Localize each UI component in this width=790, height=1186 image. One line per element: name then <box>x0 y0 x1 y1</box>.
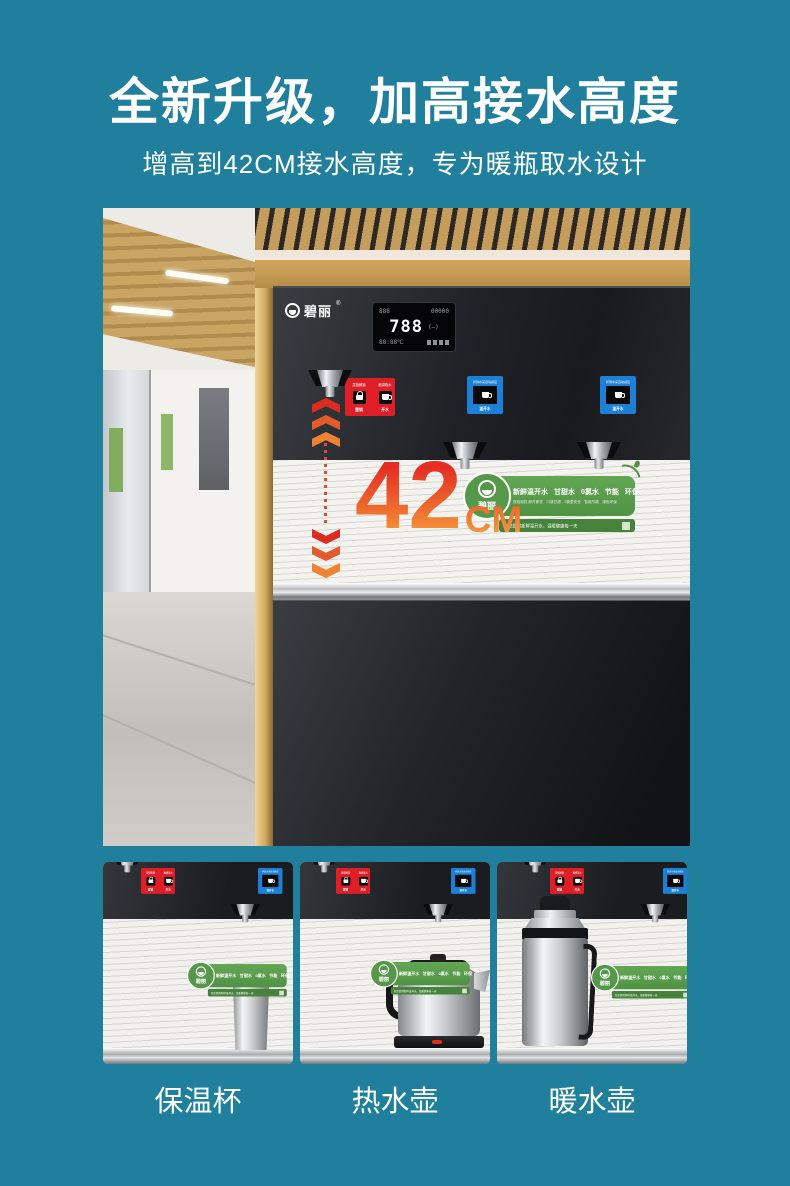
dispenser-tray-edge <box>273 583 690 600</box>
feature-banner: 新鲜温开水甘甜水 0氯水节能 环保 碧丽 为您提供新鲜温开水，温暖健康每一天 <box>591 966 687 998</box>
banner-details: 现烧现饮 即开即饮 口感甘甜 0氯更安全 智能节能 绿色环保 <box>513 498 629 503</box>
brand-logo-icon <box>285 303 300 318</box>
feature-item: 甘甜水 <box>554 487 575 497</box>
warm-water-tap <box>584 442 614 470</box>
boiling-water-tap <box>315 370 345 398</box>
warm-water-label: 杯到水来自动感应 温开水 <box>600 376 636 414</box>
thumbnail-vacuum-cup: 童锁解锁 童锁 触摸取水 开水 杯到水来自动感应 温开水 新鲜温开水甘甜水 0氯… <box>103 862 293 1064</box>
warm-water-label: 杯到水来自动感应 温开水 <box>663 868 687 894</box>
corridor-wall <box>103 370 255 592</box>
height-arrows-down <box>312 529 340 578</box>
lock-icon <box>343 879 348 882</box>
height-dotted-line <box>324 443 327 527</box>
thumbnail-thermos-flask: 童锁解锁 童锁 触摸取水 开水 杯到水来自动感应 温开水 新鲜温开水甘甜水 0氯… <box>497 862 687 1064</box>
warm-water-label: 杯到水来自动感应 温开水 <box>451 868 475 894</box>
corridor-floor <box>103 592 255 846</box>
chevron-down-icon <box>312 563 340 578</box>
height-unit: CM <box>465 501 523 538</box>
touch-key <box>473 386 497 404</box>
feature-detail: 0氯更安全 <box>564 498 580 503</box>
label-text: 温开水 <box>612 406 623 412</box>
brand-logo: 碧丽 ® <box>285 301 340 320</box>
tap-head <box>317 370 343 387</box>
qr-code <box>622 522 630 530</box>
kettle-power-light <box>432 1040 442 1044</box>
tap <box>428 904 448 923</box>
label-hint: 杯到水来自动感应 <box>606 379 630 384</box>
qr-code <box>279 990 284 995</box>
chevron-up-icon <box>312 415 340 430</box>
display-top-row: 888 00000 <box>379 308 449 315</box>
label-hint: 童锁解锁 <box>352 382 365 387</box>
hero-photo: 碧丽 ® 888 00000 788 (—) 88:88℃ <box>103 208 690 846</box>
tap-spout <box>595 458 604 469</box>
thumbnail-caption: 保温杯 <box>103 1078 293 1120</box>
boiling-water-label: 童锁解锁 童锁 触摸取水 开水 <box>550 868 584 894</box>
floor-tile-line <box>103 713 275 792</box>
cup-icon <box>382 394 389 400</box>
display-side-glyph: (—) <box>428 324 439 331</box>
registered-mark: ® <box>336 301 340 307</box>
display-bottom-row: 88:88℃ <box>379 339 449 346</box>
corridor-door <box>199 388 229 490</box>
feature-item: 环保 <box>625 487 639 497</box>
tap <box>525 862 545 873</box>
label-text: 童锁 <box>355 407 363 413</box>
touch-key <box>606 386 630 404</box>
feature-item: 0氯水 <box>581 487 599 497</box>
qr-code <box>462 988 467 993</box>
display-counter: 00000 <box>431 308 449 315</box>
thumbnail-kettle: 童锁解锁 童锁 触摸取水 开水 杯到水来自动感应 温开水 新鲜温开水甘甜水 0氯… <box>300 862 490 1064</box>
cup-icon <box>461 879 466 883</box>
cup-icon <box>166 879 171 883</box>
lock-icon <box>356 395 363 400</box>
display-main-value: 788 <box>389 317 423 337</box>
feature-item: 节能 <box>605 487 619 497</box>
feature-banner: 新鲜温开水甘甜水 0氯水节能 环保 碧丽 为您提供新鲜温开水，温暖健康每一天 <box>187 964 287 996</box>
page-subtitle: 增高到42CM接水高度，专为暖瓶取水设计 <box>0 144 790 181</box>
touch-key <box>379 391 392 404</box>
kettle-spout <box>474 970 490 992</box>
chevron-up-icon <box>312 398 340 413</box>
display-main-row: 788 (—) <box>379 317 449 337</box>
dispenser-tray-edge <box>103 1048 293 1064</box>
green-accent-panel <box>161 414 173 470</box>
cup-icon <box>615 392 622 398</box>
cup-icon <box>268 879 273 883</box>
lcd-display: 888 00000 788 (—) 88:88℃ <box>372 302 456 352</box>
cup-icon <box>482 392 489 398</box>
label-text: 开水 <box>381 407 389 413</box>
cup-icon <box>361 879 366 883</box>
floor-tile-line <box>103 633 279 694</box>
display-status-bars <box>427 340 449 345</box>
boiling-cell: 触摸取水 开水 <box>373 380 397 414</box>
cup-icon <box>673 879 678 883</box>
tap-head <box>586 442 612 459</box>
cup-icon <box>575 879 580 883</box>
height-callout: 42 CM <box>355 454 522 538</box>
height-value: 42 <box>355 454 462 538</box>
banner-features: 新鲜温开水 甘甜水 0氯水 节能 环保 <box>513 487 627 497</box>
display-clock: 88:88℃ <box>379 339 404 346</box>
thermos-flask <box>513 896 597 1050</box>
chevron-down-icon <box>312 529 340 544</box>
boiling-water-label: 童锁解锁 童锁 触摸取水 开水 <box>345 378 395 416</box>
qr-code <box>683 992 687 997</box>
boiling-water-label: 童锁解锁 童锁 触摸取水 开水 <box>141 868 175 894</box>
warm-water-label: 杯到水来自动感应 温开水 <box>258 868 282 894</box>
page-title: 全新升级，加高接水高度 <box>0 62 790 134</box>
tap <box>235 904 255 923</box>
feature-banner: 新鲜温开水甘甜水 0氯水节能 环保 碧丽 为您提供新鲜温开水，温暖健康每一天 <box>370 962 470 994</box>
wood-header-beam <box>255 260 690 288</box>
feature-detail: 口感甘甜 <box>546 498 560 503</box>
kettle-knob <box>430 954 446 962</box>
label-hint: 杯到水来自动感应 <box>473 379 497 384</box>
brand-name: 碧丽 <box>304 301 332 320</box>
chevron-down-icon <box>312 546 340 561</box>
green-accent-panel <box>109 428 123 492</box>
height-arrows-up <box>312 398 340 447</box>
display-temp: 888 <box>379 308 390 315</box>
lock-icon <box>557 879 562 882</box>
child-lock-cell: 童锁解锁 童锁 <box>347 380 371 414</box>
tap <box>645 904 665 923</box>
dispenser-cabinet <box>273 600 690 846</box>
tap <box>314 862 334 873</box>
gold-frame <box>255 288 273 846</box>
feature-detail: 智能节能 <box>584 498 598 503</box>
touch-key <box>353 391 366 404</box>
thumbnail-caption: 热水壶 <box>300 1078 490 1120</box>
wood-slat-ceiling <box>255 208 690 250</box>
lock-icon <box>148 879 153 882</box>
ceiling-band <box>255 250 690 260</box>
label-hint: 触摸取水 <box>378 382 391 387</box>
tap <box>117 862 137 873</box>
dispenser-tray-edge <box>497 1048 687 1064</box>
promo-page: 全新升级，加高接水高度 增高到42CM接水高度，专为暖瓶取水设计 <box>0 0 790 1186</box>
boiling-water-label: 童锁解锁 童锁 触摸取水 开水 <box>336 868 370 894</box>
thumbnail-caption: 暖水壶 <box>497 1078 687 1120</box>
tap-spout <box>326 386 335 397</box>
warm-water-label: 杯到水来自动感应 温开水 <box>467 376 503 414</box>
label-text: 温开水 <box>479 406 490 412</box>
feature-detail: 绿色环保 <box>602 498 616 503</box>
